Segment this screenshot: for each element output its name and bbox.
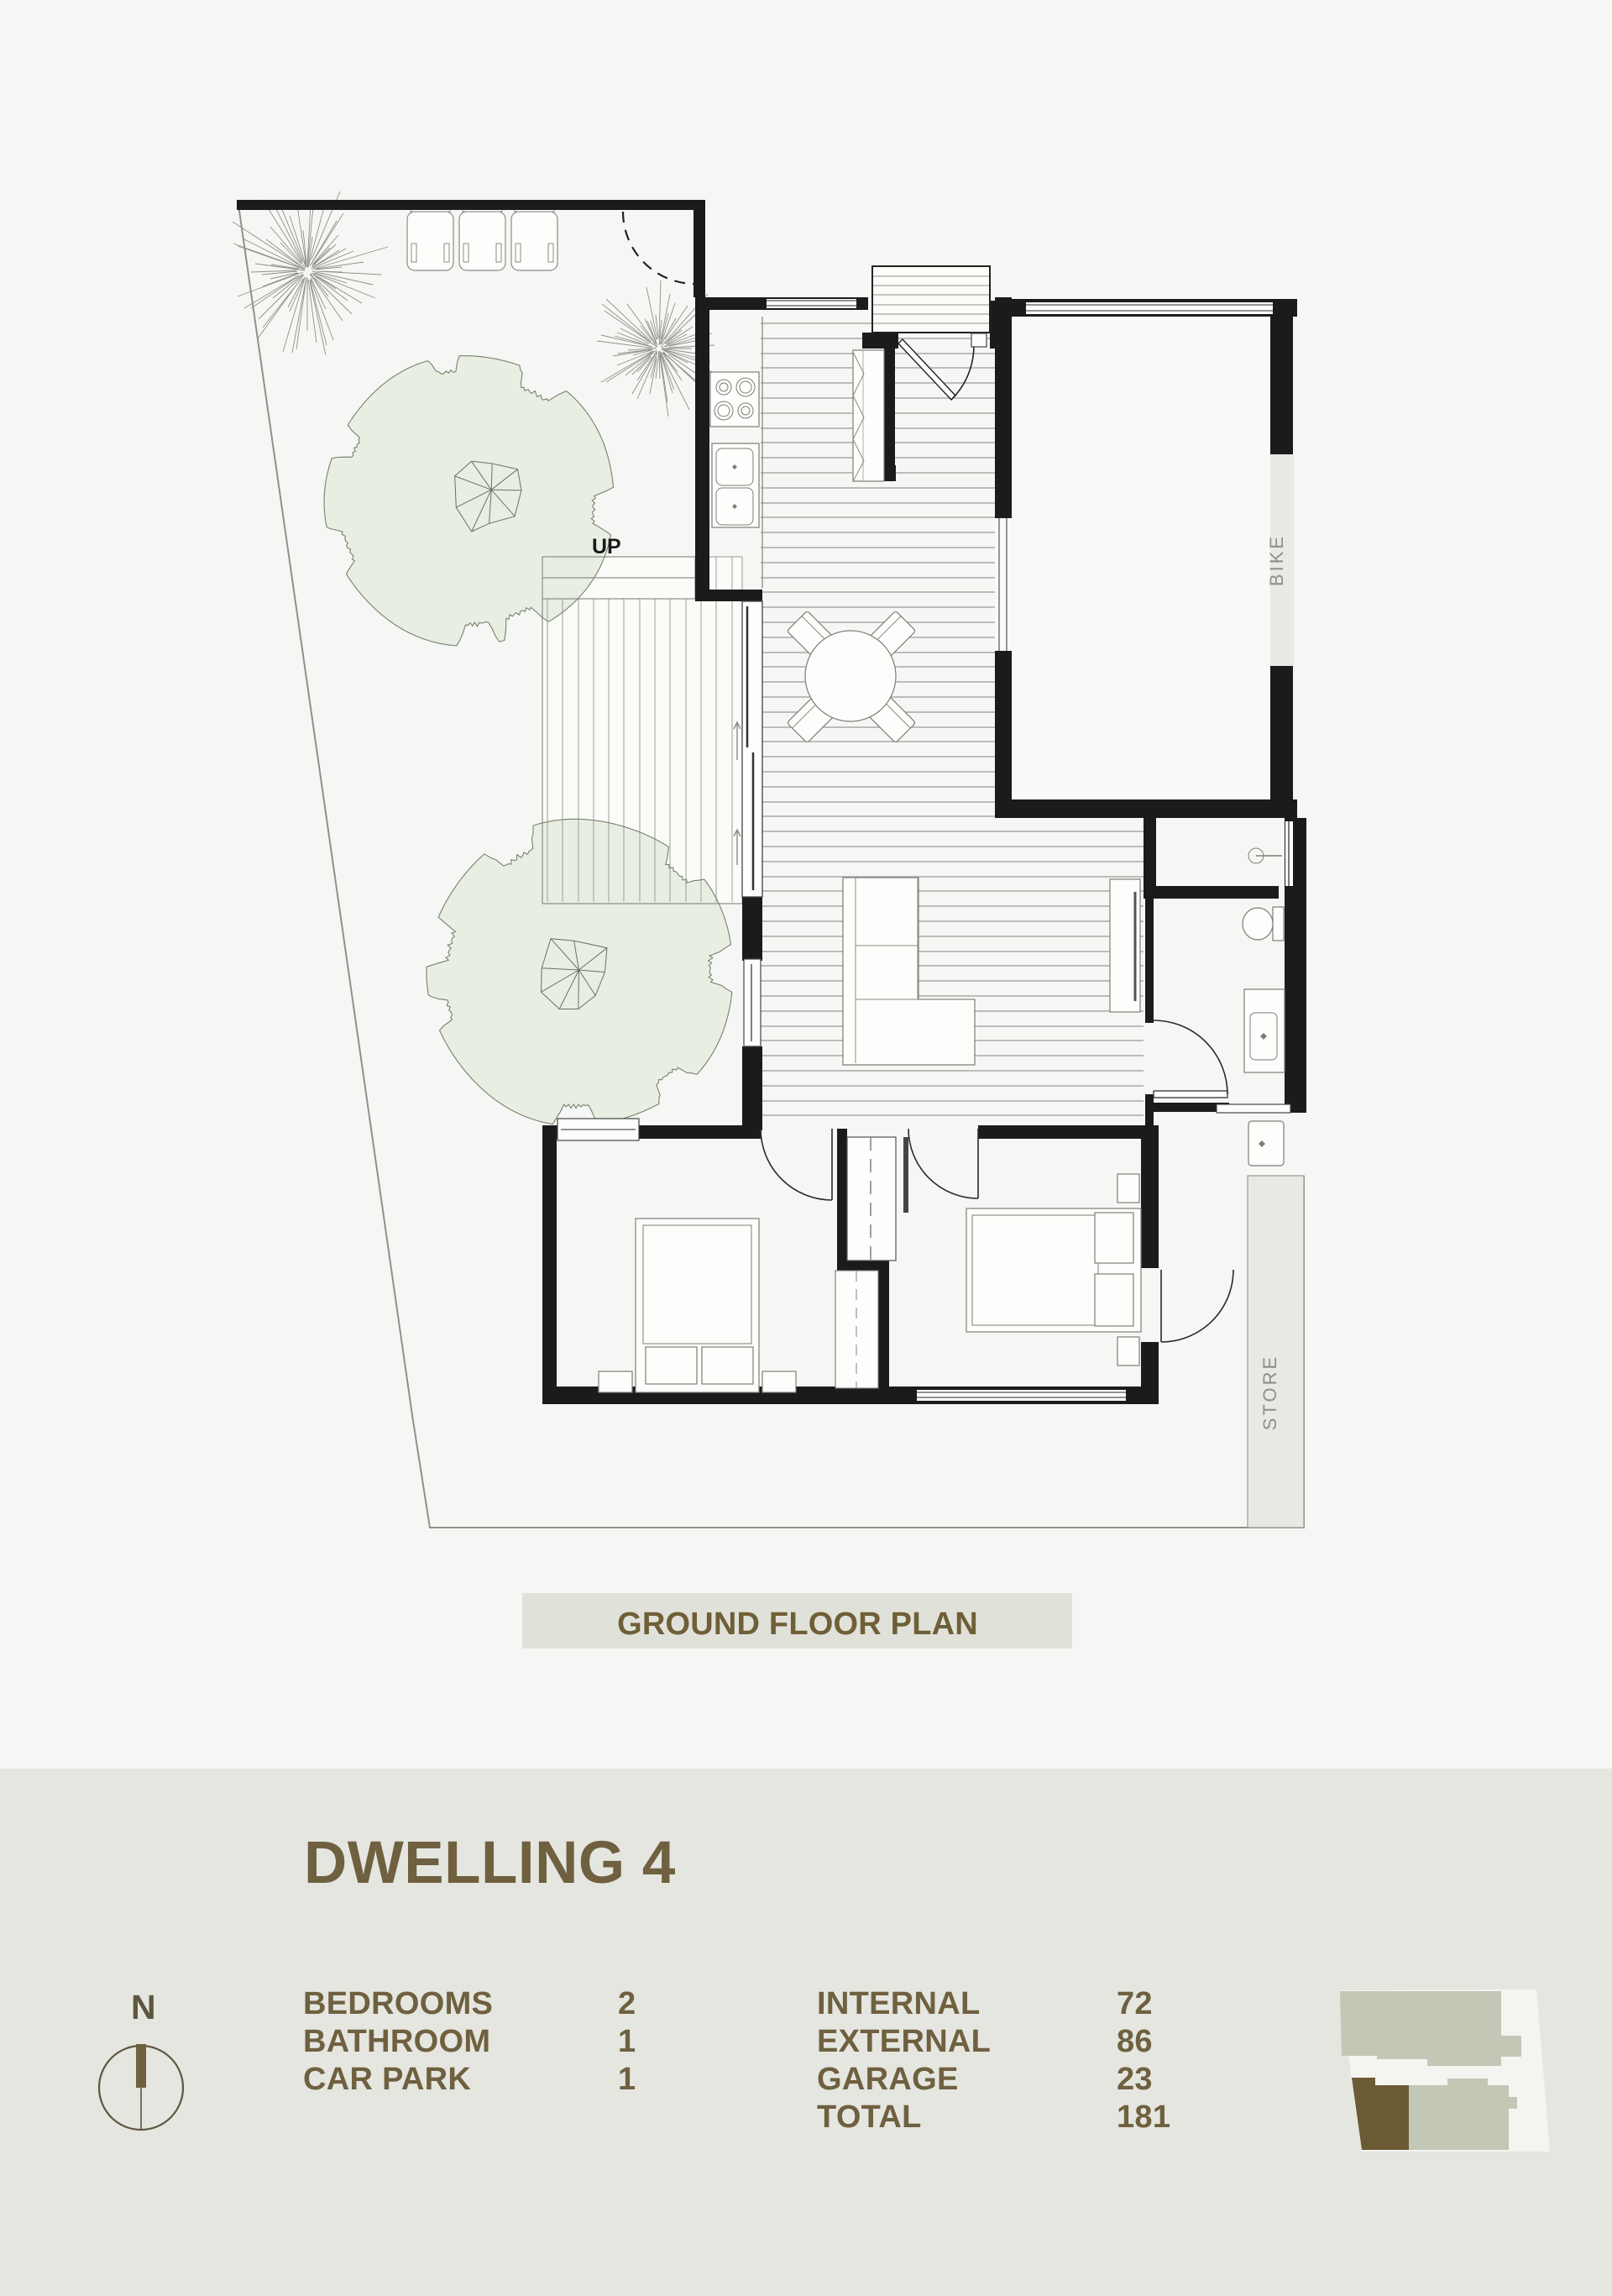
svg-text:1: 1: [618, 2024, 636, 2059]
svg-text:72: 72: [1117, 1986, 1153, 2021]
svg-text:BEDROOMS: BEDROOMS: [303, 1986, 493, 2021]
svg-text:GROUND FLOOR PLAN: GROUND FLOOR PLAN: [617, 1607, 978, 1642]
svg-text:TOTAL: TOTAL: [817, 2099, 922, 2135]
svg-text:UP: UP: [592, 535, 621, 558]
svg-text:STORE: STORE: [1259, 1355, 1280, 1430]
svg-text:GARAGE: GARAGE: [817, 2062, 959, 2097]
svg-text:2: 2: [618, 1986, 636, 2021]
svg-text:N: N: [131, 1988, 156, 2026]
svg-text:BIKE: BIKE: [1266, 534, 1287, 586]
svg-text:181: 181: [1117, 2099, 1170, 2135]
svg-text:23: 23: [1117, 2062, 1153, 2097]
svg-text:EXTERNAL: EXTERNAL: [817, 2024, 991, 2059]
svg-text:1: 1: [618, 2062, 636, 2097]
svg-text:86: 86: [1117, 2024, 1153, 2059]
svg-text:CAR PARK: CAR PARK: [303, 2062, 471, 2097]
svg-text:DWELLING 4: DWELLING 4: [304, 1830, 676, 1896]
svg-text:INTERNAL: INTERNAL: [817, 1986, 981, 2021]
svg-text:BATHROOM: BATHROOM: [303, 2024, 490, 2059]
